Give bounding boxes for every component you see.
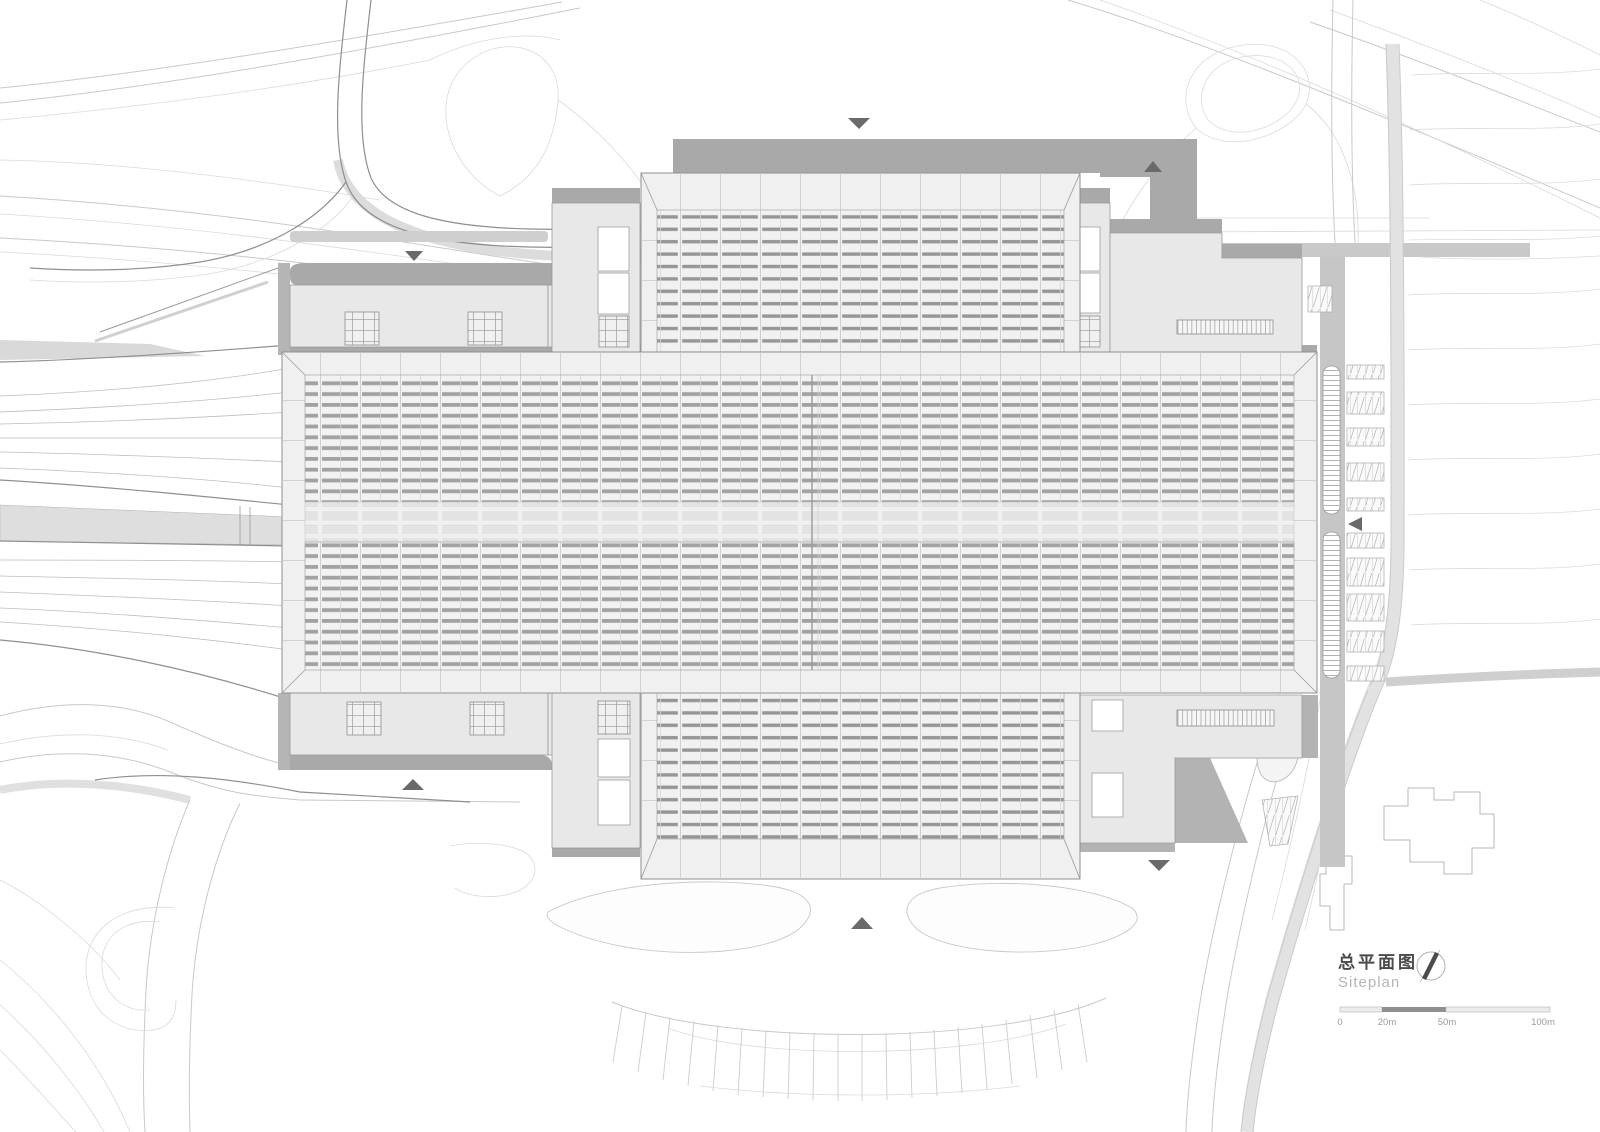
scale-label-20m: 20m xyxy=(1378,1017,1397,1028)
south-plaza xyxy=(450,843,1137,1101)
louvered-roof xyxy=(657,693,1064,839)
station-complex xyxy=(278,139,1318,879)
drop-off-canopy xyxy=(1323,532,1340,678)
entry-marker-west-down xyxy=(405,251,423,261)
roof-window xyxy=(470,702,504,735)
louvered-roof xyxy=(657,210,1064,352)
existing-building-footprints xyxy=(1320,788,1494,930)
entry-marker-south-up xyxy=(851,917,873,929)
south-wing-hall xyxy=(641,693,1080,879)
title-block: 总平面图 Siteplan 0 20m 50m 100m xyxy=(1337,950,1555,1028)
railway-corridor-west xyxy=(0,340,290,700)
north-wing-hall xyxy=(641,173,1080,352)
plan-title-secondary: Siteplan xyxy=(1338,974,1400,991)
plan-title-primary: 总平面图 xyxy=(1338,952,1418,972)
roof-window xyxy=(347,702,381,735)
entry-marker-north-down xyxy=(848,118,870,129)
entry-marker-southeast-down xyxy=(1148,860,1170,871)
siteplan-canvas: 总平面图 Siteplan 0 20m 50m 100m xyxy=(0,0,1600,1132)
parking-stall-rows xyxy=(1308,286,1384,681)
scale-bar-dark-segment xyxy=(1382,1007,1446,1012)
entry-marker-southwest-up xyxy=(402,779,424,790)
roof-window xyxy=(345,312,379,345)
louvered-roof xyxy=(305,375,1294,502)
scale-label-0: 0 xyxy=(1337,1017,1342,1028)
north-arrow-icon xyxy=(1417,950,1445,982)
roof-window xyxy=(598,701,630,734)
scale-bar: 0 20m 50m 100m xyxy=(1337,1007,1555,1028)
roof-louver-strip xyxy=(1177,710,1274,726)
siteplan-drawing: 总平面图 Siteplan 0 20m 50m 100m xyxy=(0,0,1600,1132)
scale-label-50m: 50m xyxy=(1438,1017,1457,1028)
louvered-roof xyxy=(305,542,1294,670)
roof-louver-strip xyxy=(1177,320,1273,334)
central-skylight-band xyxy=(305,502,1294,542)
main-station-hall xyxy=(282,352,1317,693)
entry-marker-east-left xyxy=(1348,517,1362,531)
roof-window xyxy=(468,312,502,345)
scale-label-100m: 100m xyxy=(1531,1017,1555,1028)
roof-window xyxy=(599,316,629,347)
drop-off-canopy xyxy=(1323,366,1340,514)
ancillary-block-southwest xyxy=(290,693,640,848)
